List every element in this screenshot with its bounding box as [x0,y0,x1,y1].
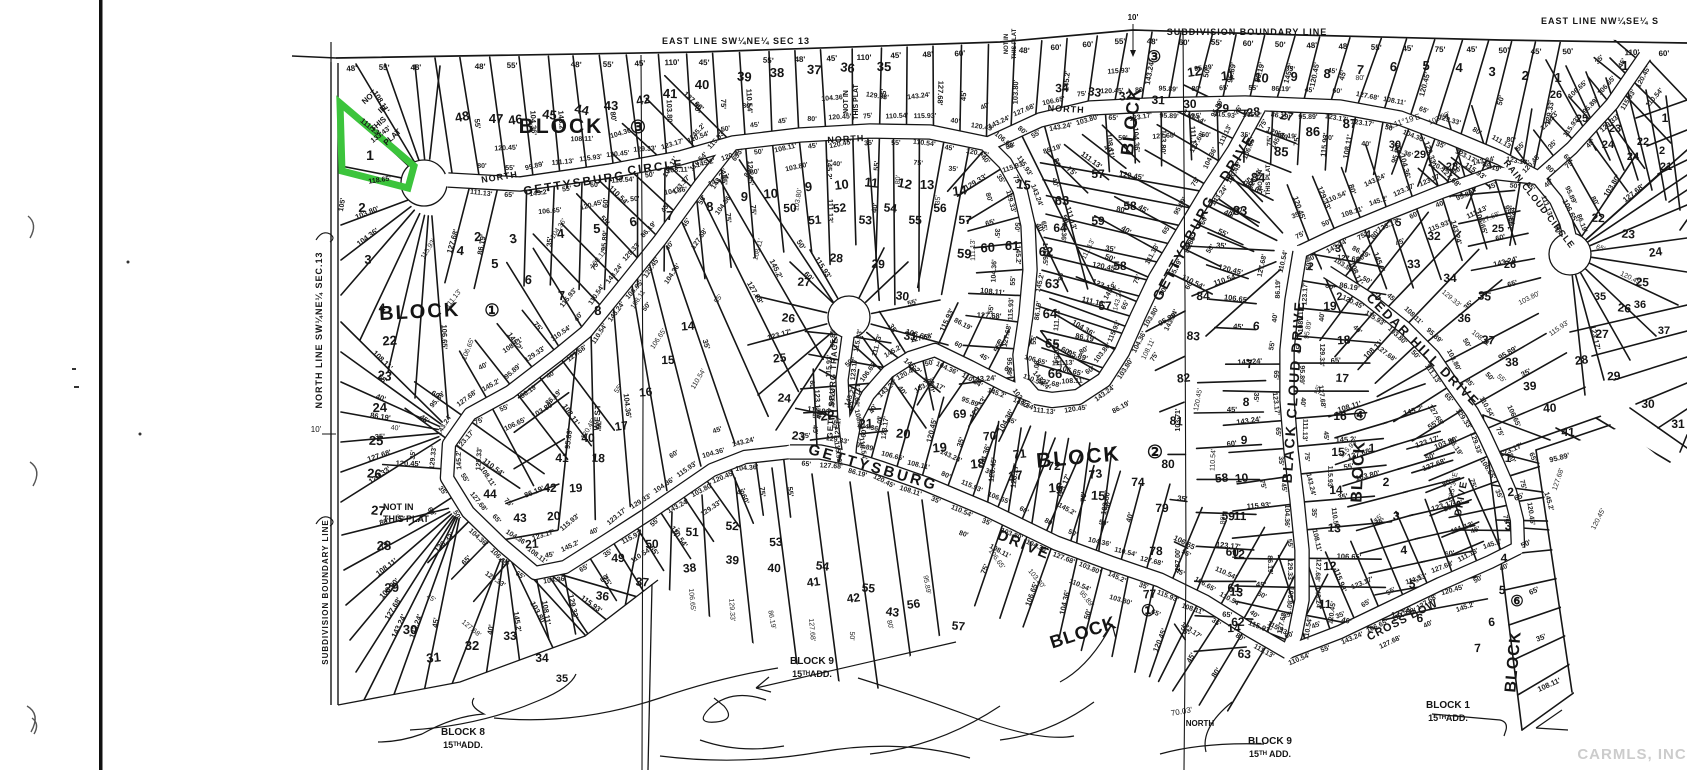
svg-text:45': 45' [1322,431,1330,441]
svg-text:120.45': 120.45' [746,160,756,185]
svg-text:65': 65' [801,460,812,468]
svg-text:40': 40' [1361,141,1371,148]
svg-text:45': 45' [959,90,969,101]
svg-text:103.71': 103.71' [1175,408,1182,431]
svg-text:45': 45' [699,58,710,67]
svg-text:⑥: ⑥ [1510,593,1523,610]
svg-text:44: 44 [483,487,497,501]
svg-text:29: 29 [1414,149,1426,161]
svg-text:45': 45' [1227,405,1237,414]
svg-text:39: 39 [737,68,753,84]
svg-text:75': 75' [1435,45,1446,54]
svg-text:18: 18 [1337,333,1351,348]
svg-text:35: 35 [1594,291,1606,303]
svg-text:EAST LINE SW¼NE¼ SEC 13: EAST LINE SW¼NE¼ SEC 13 [662,36,810,46]
svg-text:55': 55' [785,486,795,497]
svg-text:17: 17 [614,418,629,434]
svg-text:54: 54 [815,558,830,574]
svg-text:11: 11 [1234,509,1247,523]
svg-text:60': 60' [954,49,965,59]
svg-text:45': 45' [1256,580,1267,589]
svg-text:145.2': 145.2' [1242,112,1262,120]
svg-text:NORTH LINE SW¼NE¼ SEC.13: NORTH LINE SW¼NE¼ SEC.13 [314,251,324,408]
svg-text:55': 55' [603,60,614,69]
svg-text:61: 61 [1227,581,1241,595]
svg-text:103.80': 103.80' [1011,79,1021,104]
svg-text:115.93': 115.93' [914,113,937,120]
svg-text:40': 40' [1272,312,1280,322]
svg-text:③: ③ [1147,49,1161,66]
svg-text:39: 39 [725,552,740,567]
svg-text:THIS PLAT: THIS PLAT [383,514,429,524]
svg-text:65': 65' [1222,610,1233,620]
svg-text:143.24': 143.24' [1237,356,1262,367]
svg-text:42: 42 [635,91,652,108]
svg-text:37: 37 [635,575,650,590]
svg-text:86.19': 86.19' [1275,279,1283,299]
svg-text:75': 75' [758,486,768,497]
svg-text:45': 45' [890,51,901,61]
svg-text:NORTH: NORTH [827,133,864,145]
svg-text:95.89': 95.89' [1158,85,1178,93]
svg-text:9: 9 [1241,433,1248,447]
svg-text:47: 47 [489,111,504,126]
svg-text:55': 55' [762,56,774,66]
svg-text:14: 14 [681,319,696,334]
svg-text:28: 28 [829,251,844,266]
svg-text:62: 62 [1231,615,1245,629]
svg-text:24: 24 [1648,244,1663,260]
svg-text:75': 75' [724,212,734,223]
svg-text:39: 39 [1523,379,1537,394]
svg-text:111.13': 111.13' [1301,419,1309,442]
svg-text:23: 23 [1621,227,1636,242]
svg-text:45': 45' [826,54,837,64]
svg-text:1: 1 [1662,111,1669,125]
svg-text:115.93': 115.93' [1326,466,1333,489]
svg-text:11: 11 [864,174,879,190]
svg-text:50': 50' [848,631,855,640]
svg-text:111.13': 111.13' [1188,126,1199,151]
svg-text:31: 31 [1151,93,1166,108]
svg-text:26: 26 [781,310,796,325]
svg-text:48': 48' [475,62,486,71]
svg-text:110': 110' [857,53,872,62]
svg-text:35': 35' [993,228,1001,238]
svg-text:71: 71 [1012,446,1027,461]
svg-text:45': 45' [1327,67,1338,75]
svg-text:28: 28 [1574,352,1589,368]
svg-text:108.11': 108.11' [1061,377,1084,385]
svg-text:37: 37 [807,62,822,78]
svg-text:55': 55' [720,175,730,186]
svg-text:NOT IN: NOT IN [383,502,414,512]
svg-text:10: 10 [1234,470,1249,485]
svg-text:60': 60' [1444,548,1456,559]
svg-text:86: 86 [1305,124,1320,139]
svg-text:55': 55' [1248,85,1258,93]
svg-text:50': 50' [630,196,640,204]
svg-text:1: 1 [366,147,374,163]
svg-text:26: 26 [1550,89,1562,101]
svg-text:38: 38 [770,65,785,80]
svg-text:110.54': 110.54' [885,113,908,121]
svg-text:70: 70 [983,429,998,444]
svg-text:THIS PLAT: THIS PLAT [1012,28,1018,59]
svg-text:10': 10' [311,425,322,434]
svg-text:40': 40' [1054,485,1065,497]
svg-text:80': 80' [1116,204,1128,215]
svg-text:16: 16 [638,384,653,399]
svg-text:35: 35 [556,673,568,685]
svg-text:75': 75' [913,160,923,168]
svg-text:60': 60' [601,197,610,208]
svg-text:103.80': 103.80' [1159,130,1169,155]
svg-text:95.89': 95.89' [1159,113,1179,121]
svg-text:31: 31 [426,649,442,665]
svg-text:CARMLS, INC: CARMLS, INC [1577,746,1686,763]
svg-text:48': 48' [1338,42,1349,52]
svg-text:48: 48 [454,108,471,126]
svg-text:74: 74 [1131,475,1145,489]
svg-text:60': 60' [1050,43,1061,52]
svg-text:35': 35' [1216,241,1227,251]
svg-text:58: 58 [1214,470,1229,485]
svg-text:55': 55' [379,63,390,72]
svg-text:BLOCK 1: BLOCK 1 [1426,700,1470,711]
svg-text:3: 3 [364,252,371,267]
svg-text:35': 35' [1252,392,1260,402]
svg-text:45': 45' [879,88,888,99]
svg-text:15ᵀᴴADD.: 15ᵀᴴADD. [443,740,483,750]
svg-text:120.45': 120.45' [396,459,421,469]
svg-text:NORTH: NORTH [1186,719,1215,728]
svg-text:80': 80' [1355,75,1364,82]
svg-text:10: 10 [833,176,849,193]
svg-text:56: 56 [906,596,921,612]
svg-text:55': 55' [1370,43,1381,53]
svg-text:145.2': 145.2' [456,450,464,470]
svg-text:60': 60' [1332,88,1342,96]
svg-text:60': 60' [1658,49,1669,58]
svg-text:55': 55' [507,61,518,70]
svg-text:35': 35' [1310,508,1317,518]
svg-text:BLOCK: BLOCK [519,115,604,138]
svg-text:9: 9 [804,179,813,195]
svg-text:80': 80' [1191,86,1201,94]
svg-text:9: 9 [740,189,748,205]
svg-text:84: 84 [1196,289,1210,303]
svg-text:60': 60' [1243,39,1254,48]
svg-text:145.2': 145.2' [825,159,834,180]
svg-text:4: 4 [1455,60,1463,75]
svg-text:③: ③ [630,117,646,137]
svg-text:36: 36 [839,59,855,76]
svg-text:129.33': 129.33' [633,145,657,153]
svg-text:65': 65' [1108,115,1118,123]
svg-text:43: 43 [513,511,527,525]
svg-text:110.54': 110.54' [744,88,754,113]
svg-text:287.00': 287.00' [1175,548,1182,571]
svg-text:3: 3 [1488,64,1496,79]
svg-text:40: 40 [1543,401,1557,416]
svg-text:80': 80' [1058,271,1065,281]
svg-text:BLOCK 8: BLOCK 8 [441,727,485,738]
svg-text:110': 110' [1624,48,1639,57]
svg-text:55': 55' [891,140,901,147]
svg-text:15ᵀᴴ ADD.: 15ᵀᴴ ADD. [1249,749,1291,759]
svg-text:NOT IN: NOT IN [843,90,850,114]
svg-text:35': 35' [864,140,874,148]
svg-text:55': 55' [472,118,482,129]
svg-text:55': 55' [872,160,882,171]
svg-text:65': 65' [1219,85,1229,93]
svg-text:103.80': 103.80' [665,99,675,124]
svg-text:52: 52 [725,519,739,534]
svg-text:10: 10 [763,186,778,202]
svg-text:35: 35 [877,59,892,74]
svg-text:51: 51 [685,525,699,540]
svg-text:75': 75' [1292,135,1302,146]
svg-text:48': 48' [1146,37,1157,47]
svg-text:80': 80' [477,163,487,170]
svg-text:22: 22 [1591,211,1605,226]
svg-text:18: 18 [591,451,606,466]
svg-text:22: 22 [382,332,398,348]
svg-text:36: 36 [1457,311,1471,326]
svg-text:40: 40 [695,77,710,92]
svg-text:35: 35 [1477,288,1492,304]
svg-text:55': 55' [1010,276,1018,286]
svg-text:53: 53 [769,535,783,550]
svg-text:SUBDIVISION BOUNDARY LINE: SUBDIVISION BOUNDARY LINE [321,519,330,664]
svg-text:17: 17 [1335,371,1349,386]
svg-text:8: 8 [1243,395,1250,409]
svg-text:33: 33 [1407,257,1422,272]
svg-text:80: 80 [1161,457,1175,471]
svg-text:2: 2 [1383,475,1390,489]
svg-text:60: 60 [980,240,995,256]
svg-text:50': 50' [1498,46,1509,56]
svg-text:54: 54 [883,200,898,215]
svg-text:29: 29 [871,257,885,272]
svg-text:48': 48' [922,50,933,60]
svg-text:143.24': 143.24' [971,373,997,384]
svg-text:4: 4 [1400,543,1408,557]
svg-text:75': 75' [1077,91,1087,99]
svg-text:5: 5 [1498,583,1506,597]
svg-text:75': 75' [1303,452,1310,462]
svg-text:40': 40' [1319,312,1326,322]
svg-text:40': 40' [390,425,400,433]
svg-text:45': 45' [430,617,441,629]
svg-text:BLOCK 9: BLOCK 9 [790,656,834,667]
svg-text:115.93': 115.93' [1008,297,1016,320]
svg-text:20: 20 [547,509,562,524]
svg-text:86.19': 86.19' [1266,555,1274,575]
svg-text:106.65': 106.65' [440,324,450,349]
svg-text:104.36': 104.36' [1283,504,1290,527]
svg-text:65': 65' [1274,427,1281,437]
svg-text:10': 10' [1128,13,1139,22]
svg-text:3: 3 [1392,509,1400,523]
svg-text:31: 31 [1671,417,1685,431]
svg-text:35': 35' [1177,493,1188,503]
svg-text:45': 45' [808,142,819,150]
svg-text:45': 45' [811,425,819,435]
svg-text:60': 60' [1179,38,1190,47]
svg-text:20: 20 [896,425,912,441]
svg-text:29: 29 [1607,369,1621,384]
svg-text:45': 45' [750,121,760,129]
svg-text:SUBDIVISION BOUNDARY LINE: SUBDIVISION BOUNDARY LINE [1167,27,1328,37]
svg-text:55': 55' [1114,37,1125,46]
svg-text:42: 42 [543,481,557,495]
svg-text:60': 60' [1226,438,1237,448]
svg-text:35': 35' [375,432,386,441]
svg-text:2: 2 [1521,68,1529,83]
svg-text:75': 75' [1265,136,1274,146]
svg-text:7: 7 [1474,641,1482,655]
svg-text:82: 82 [1176,370,1191,385]
svg-text:78: 78 [1149,544,1163,558]
svg-text:110.54': 110.54' [1209,449,1217,472]
svg-text:21: 21 [1660,161,1672,173]
svg-text:36: 36 [1634,299,1646,311]
svg-text:32: 32 [465,638,479,653]
svg-text:45': 45' [634,59,645,69]
svg-text:15ᵀᴴADD.: 15ᵀᴴADD. [1428,713,1468,723]
svg-text:1: 1 [1554,70,1562,85]
svg-text:60': 60' [926,382,937,394]
svg-text:106.65': 106.65' [1337,552,1362,562]
svg-text:73: 73 [1088,466,1103,482]
svg-text:53: 53 [858,213,873,228]
svg-text:106.65': 106.65' [1041,242,1048,265]
svg-text:24: 24 [1627,151,1640,163]
svg-text:41: 41 [806,574,821,590]
svg-text:5: 5 [593,221,601,236]
svg-text:59: 59 [1091,214,1105,228]
svg-text:8: 8 [594,303,602,318]
svg-text:50': 50' [1274,40,1285,50]
svg-text:69: 69 [953,407,968,422]
svg-text:35': 35' [935,195,942,204]
svg-text:83: 83 [1186,329,1201,344]
svg-text:129.33': 129.33' [1286,558,1293,581]
svg-text:19: 19 [1323,299,1337,313]
svg-text:BLOCK 9: BLOCK 9 [1248,736,1292,747]
svg-text:127.68': 127.68' [977,310,1002,320]
svg-text:37: 37 [1658,325,1670,337]
svg-text:75': 75' [863,112,874,120]
svg-text:80': 80' [895,175,903,185]
svg-text:45': 45' [845,399,855,410]
svg-text:50': 50' [1013,222,1021,232]
svg-text:19: 19 [569,481,584,496]
svg-text:THIS PLAT: THIS PLAT [1266,164,1272,195]
svg-text:50': 50' [1562,47,1574,57]
svg-text:22: 22 [1637,136,1649,148]
svg-text:WEST: WEST [593,403,603,430]
svg-text:THIS PLAT: THIS PLAT [853,83,860,119]
svg-text:38: 38 [682,560,697,575]
svg-text:48': 48' [410,63,421,72]
svg-text:25: 25 [772,350,787,365]
svg-text:55': 55' [1210,37,1222,47]
svg-text:104.36': 104.36' [990,259,998,283]
svg-text:120.45': 120.45' [1100,88,1124,96]
svg-text:①: ① [484,301,499,320]
svg-text:111.13': 111.13' [826,199,835,223]
svg-text:55: 55 [908,213,922,228]
svg-text:40': 40' [485,624,496,636]
svg-text:120.45': 120.45' [494,144,518,152]
svg-text:5: 5 [491,256,499,271]
svg-text:80': 80' [1220,515,1227,524]
svg-text:65': 65' [1330,356,1341,366]
svg-text:80': 80' [1506,137,1516,145]
svg-text:NORTH: NORTH [1047,103,1084,115]
svg-text:30: 30 [1641,397,1655,411]
svg-text:48': 48' [570,60,581,70]
svg-text:5: 5 [1422,58,1430,73]
svg-text:79: 79 [1155,501,1169,515]
svg-text:45': 45' [944,144,955,152]
svg-text:57: 57 [958,213,972,227]
svg-text:115.93': 115.93' [1246,500,1271,511]
svg-text:48': 48' [1018,46,1030,56]
svg-text:129.33': 129.33' [727,598,735,621]
svg-text:65': 65' [504,192,514,199]
svg-text:40': 40' [874,416,882,427]
svg-text:60': 60' [1082,40,1094,50]
svg-text:48': 48' [1306,41,1318,51]
svg-text:95.89': 95.89' [599,230,610,251]
svg-text:48': 48' [794,55,805,64]
svg-text:15: 15 [661,353,675,367]
svg-text:NOT IN: NOT IN [1004,34,1010,54]
svg-text:8: 8 [706,199,714,214]
svg-text:④: ④ [1353,407,1366,424]
svg-text:63: 63 [1055,193,1069,208]
svg-text:40': 40' [870,202,880,213]
svg-text:24: 24 [777,390,792,405]
svg-text:34: 34 [535,651,549,665]
svg-text:13: 13 [920,177,935,192]
svg-text:15ᵀᴴADD.: 15ᵀᴴADD. [792,669,832,679]
svg-text:110': 110' [664,58,679,68]
svg-text:145.2': 145.2' [1014,245,1021,265]
svg-text:50': 50' [754,148,765,156]
svg-text:45': 45' [1466,45,1477,55]
svg-text:80': 80' [807,116,817,123]
svg-text:45': 45' [1402,44,1413,54]
svg-text:34: 34 [1443,271,1457,285]
svg-text:②: ② [1147,442,1163,462]
svg-text:43: 43 [885,604,900,620]
svg-text:40: 40 [767,561,781,575]
svg-text:145.2': 145.2' [1061,70,1072,91]
svg-text:①: ① [1141,603,1155,620]
svg-text:24: 24 [1602,139,1615,151]
svg-text:BLOCK: BLOCK [1348,440,1368,503]
svg-text:129.33': 129.33' [1318,343,1325,367]
svg-text:45': 45' [1233,322,1244,332]
svg-text:57: 57 [951,618,966,633]
svg-text:BLOCK: BLOCK [379,299,461,325]
svg-text:41: 41 [1561,425,1575,439]
